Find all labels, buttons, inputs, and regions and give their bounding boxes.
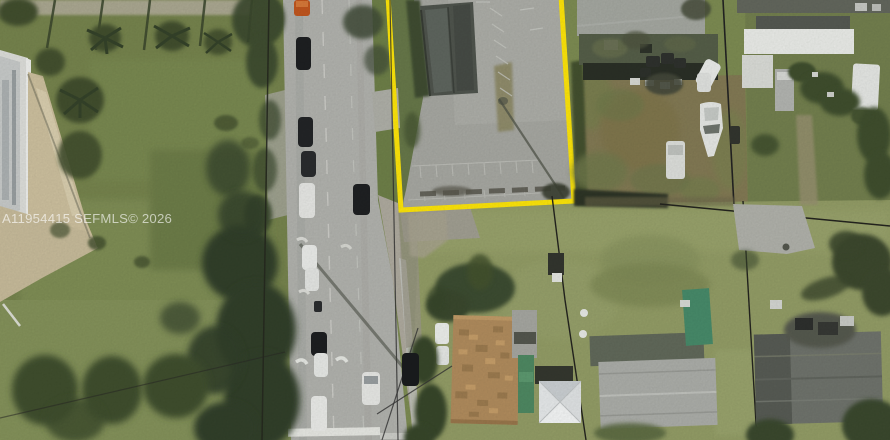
svg-text:A11954415 SEFMLS© 2026: A11954415 SEFMLS© 2026	[2, 211, 172, 226]
